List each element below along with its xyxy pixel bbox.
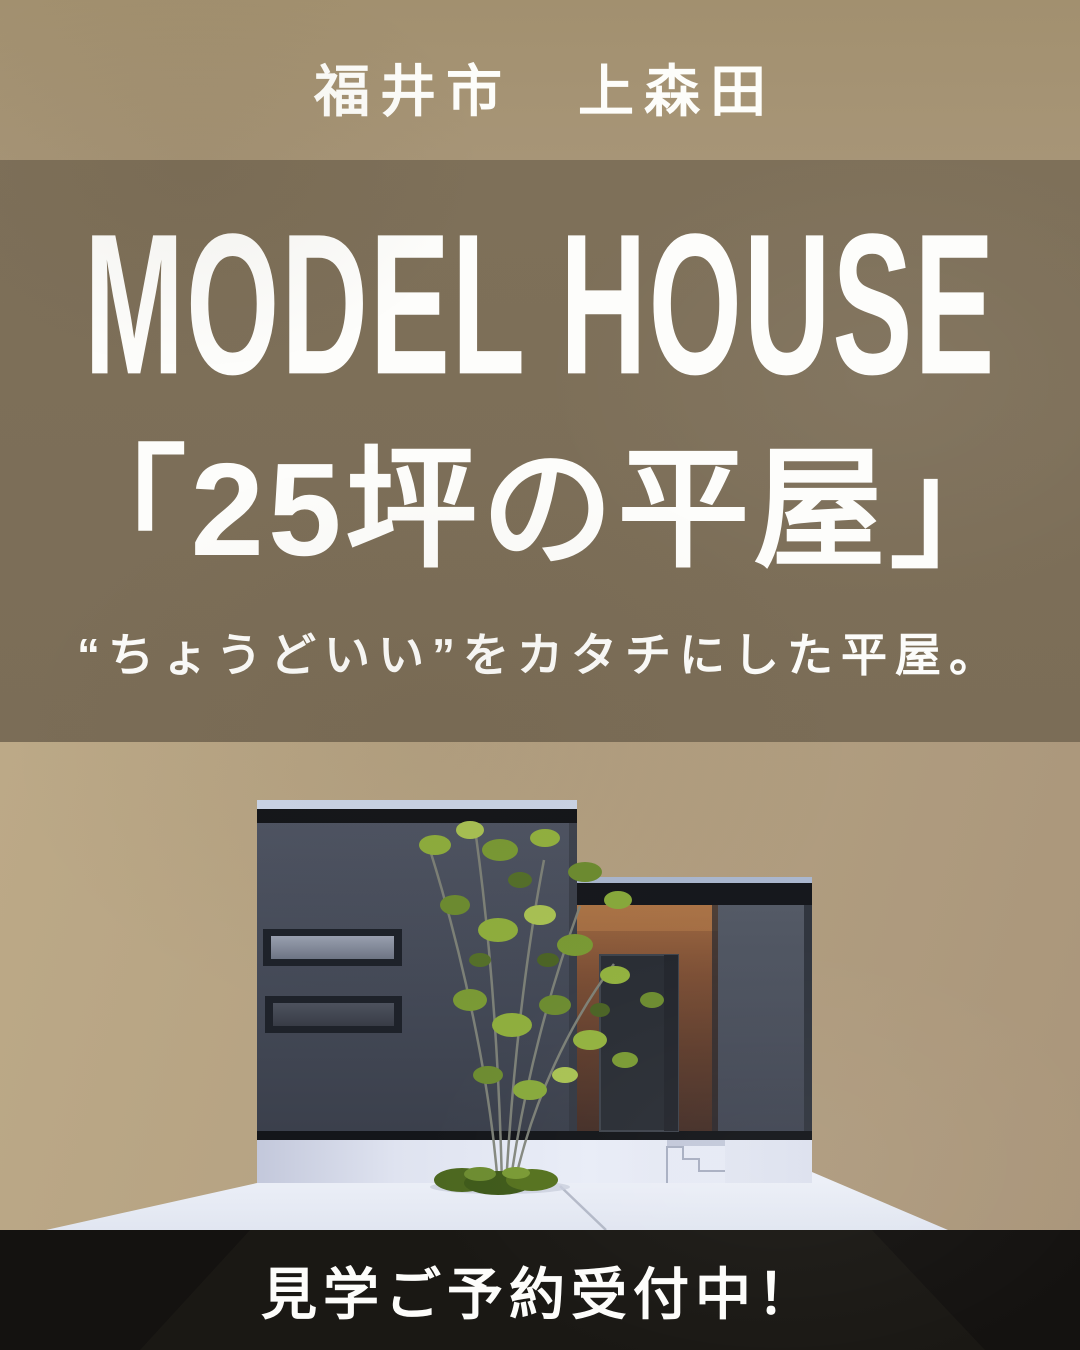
title-band: MODEL HOUSE 「25坪の平屋」 “ちょうどいい”をカタチにした平屋。 [0, 160, 1080, 742]
top-strip: 福井市 上森田 [0, 0, 1080, 160]
entry-steps [667, 1140, 725, 1183]
main-title-jp: 「25坪の平屋」 [0, 430, 1080, 590]
model-house-illustration [0, 742, 1080, 1230]
house-entrance-volume [577, 877, 812, 1131]
cta-label: 見学ご予約受付中！ [261, 1250, 819, 1331]
scene [0, 742, 1080, 1230]
poster: 福井市 上森田 MODEL HOUSE 「25坪の平屋」 “ちょうどいい”をカタ… [0, 0, 1080, 1350]
main-title-en: MODEL HOUSE [84, 205, 996, 406]
location-label: 福井市 上森田 [304, 33, 776, 128]
main-title-en-wrap: MODEL HOUSE [0, 225, 1080, 385]
tagline: “ちょうどいい”をカタチにした平屋。 [0, 622, 1080, 682]
cta-banner: 見学ご予約受付中！ [0, 1230, 1080, 1350]
